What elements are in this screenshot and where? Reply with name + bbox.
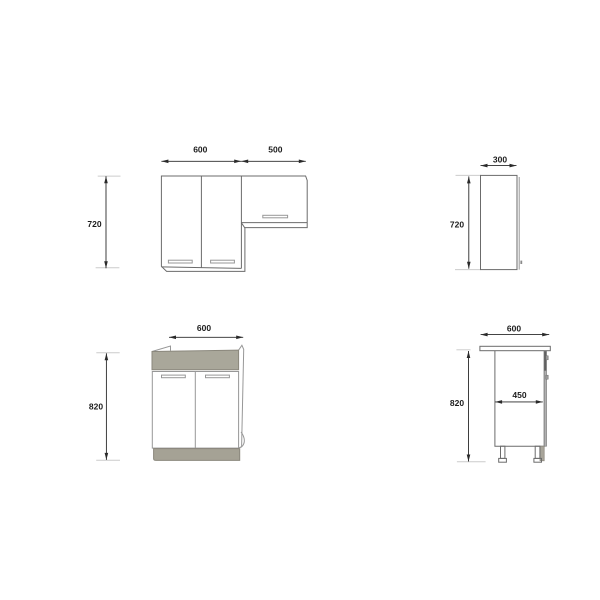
svg-text:450: 450	[512, 390, 526, 400]
svg-text:820: 820	[450, 398, 464, 408]
svg-text:720: 720	[450, 219, 464, 229]
svg-text:600: 600	[193, 144, 207, 154]
svg-text:300: 300	[493, 154, 507, 164]
svg-text:820: 820	[89, 401, 103, 411]
svg-text:500: 500	[268, 144, 282, 154]
svg-text:600: 600	[507, 324, 521, 334]
svg-text:720: 720	[87, 219, 101, 229]
svg-text:600: 600	[197, 323, 211, 333]
